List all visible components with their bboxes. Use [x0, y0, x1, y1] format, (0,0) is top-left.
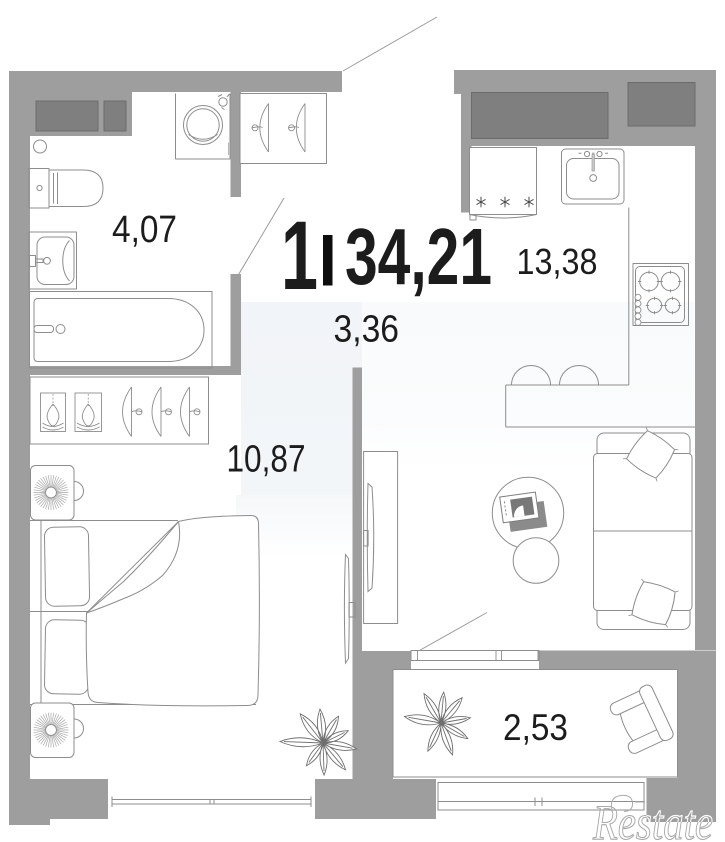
svg-text:10,87: 10,87 — [227, 439, 306, 481]
svg-text:1: 1 — [281, 201, 318, 310]
svg-text:2,53: 2,53 — [503, 707, 568, 748]
svg-text:13,38: 13,38 — [517, 241, 598, 282]
svg-text:3,36: 3,36 — [334, 309, 400, 351]
svg-text:4,07: 4,07 — [112, 209, 177, 251]
svg-text:34,21: 34,21 — [345, 212, 492, 301]
